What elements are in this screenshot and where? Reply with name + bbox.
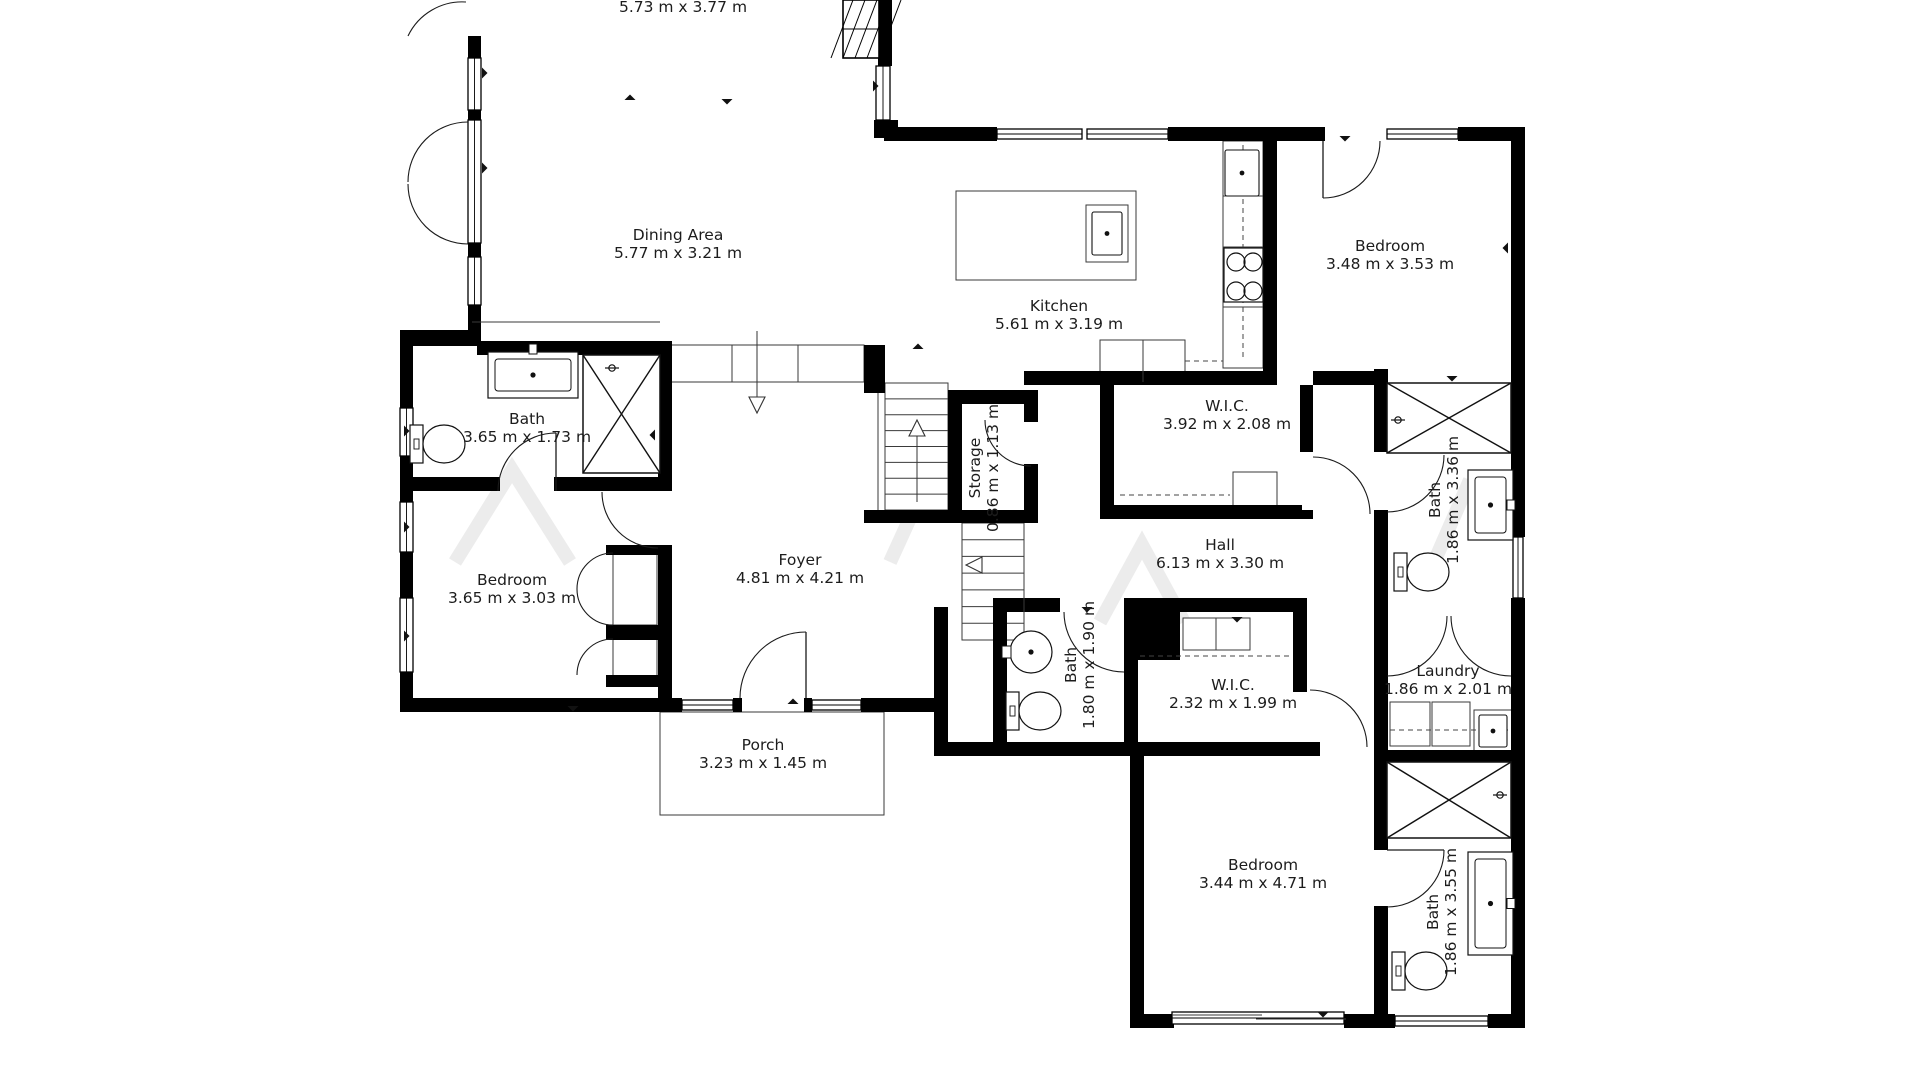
toilet-button	[414, 439, 419, 449]
furniture-outline	[1390, 702, 1430, 746]
sink-drain	[1240, 171, 1245, 176]
wall	[1100, 505, 1302, 519]
wall	[1313, 371, 1374, 385]
wall	[1374, 510, 1388, 612]
wall	[606, 545, 672, 555]
wall	[606, 625, 672, 640]
wall	[993, 598, 1007, 742]
furniture-outline	[1432, 702, 1470, 746]
room-label-dining: Dining Area5.77 m x 3.21 m	[614, 226, 742, 262]
wall	[400, 330, 481, 346]
wall	[1458, 127, 1525, 141]
wall	[1168, 127, 1325, 141]
wall	[864, 345, 885, 393]
toilet-bowl	[1407, 553, 1449, 591]
faucet-icon	[1507, 899, 1515, 909]
room-label-text: Dining Area5.77 m x 3.21 m	[614, 226, 742, 262]
toilet-bowl	[423, 425, 465, 463]
furniture-outline	[613, 553, 657, 625]
sink-drain	[1028, 649, 1033, 654]
wall	[1138, 612, 1180, 660]
wall	[554, 477, 658, 491]
wall	[804, 698, 812, 712]
wall	[468, 36, 481, 58]
wall	[1374, 906, 1388, 1028]
wall	[1300, 510, 1313, 519]
room-label-living: 5.73 m x 3.77 m	[619, 0, 747, 16]
wall	[1263, 141, 1277, 385]
wall	[864, 510, 1038, 523]
wall	[934, 607, 948, 756]
canvas-background	[0, 0, 1920, 1080]
wall	[1293, 612, 1307, 692]
wall	[468, 243, 481, 257]
furniture-outline	[613, 639, 657, 677]
sink-drain	[1488, 502, 1493, 507]
wall	[1130, 742, 1144, 1028]
wall	[1024, 404, 1038, 422]
wall	[400, 552, 413, 598]
wall	[874, 120, 898, 138]
wall	[1374, 369, 1388, 452]
room-label-text: 5.73 m x 3.77 m	[619, 0, 747, 16]
wall	[400, 698, 682, 712]
toilet-button	[1396, 966, 1401, 976]
sink-drain	[530, 372, 535, 377]
floorplan-page: 5.73 m x 3.77 mDining Area5.77 m x 3.21 …	[0, 0, 1920, 1080]
floorplan-drawing: 5.73 m x 3.77 mDining Area5.77 m x 3.21 …	[0, 0, 1920, 1080]
wall	[1100, 385, 1114, 519]
wall	[1124, 598, 1138, 756]
sink-drain	[1105, 231, 1110, 236]
toilet-button	[1010, 706, 1015, 716]
wall	[1024, 371, 1267, 385]
wall	[1124, 598, 1307, 612]
wall	[733, 698, 742, 712]
sink-drain	[1491, 729, 1496, 734]
wall	[606, 675, 672, 687]
wall	[1374, 598, 1388, 850]
wall	[1130, 1014, 1174, 1028]
sink-drain	[1488, 901, 1493, 906]
wall	[948, 390, 962, 523]
wall	[948, 390, 1038, 404]
toilet-bowl	[1405, 952, 1447, 990]
faucet-icon	[1507, 500, 1515, 510]
wall	[400, 344, 413, 408]
wall	[400, 477, 500, 491]
wall	[1300, 385, 1313, 452]
furniture-outline	[667, 345, 864, 382]
faucet-icon	[1002, 646, 1011, 658]
wall	[884, 127, 997, 141]
wall	[1511, 598, 1525, 1028]
wall	[1293, 743, 1307, 756]
toilet-bowl	[1019, 692, 1061, 730]
toilet-button	[1398, 567, 1403, 577]
faucet-icon	[529, 344, 537, 354]
